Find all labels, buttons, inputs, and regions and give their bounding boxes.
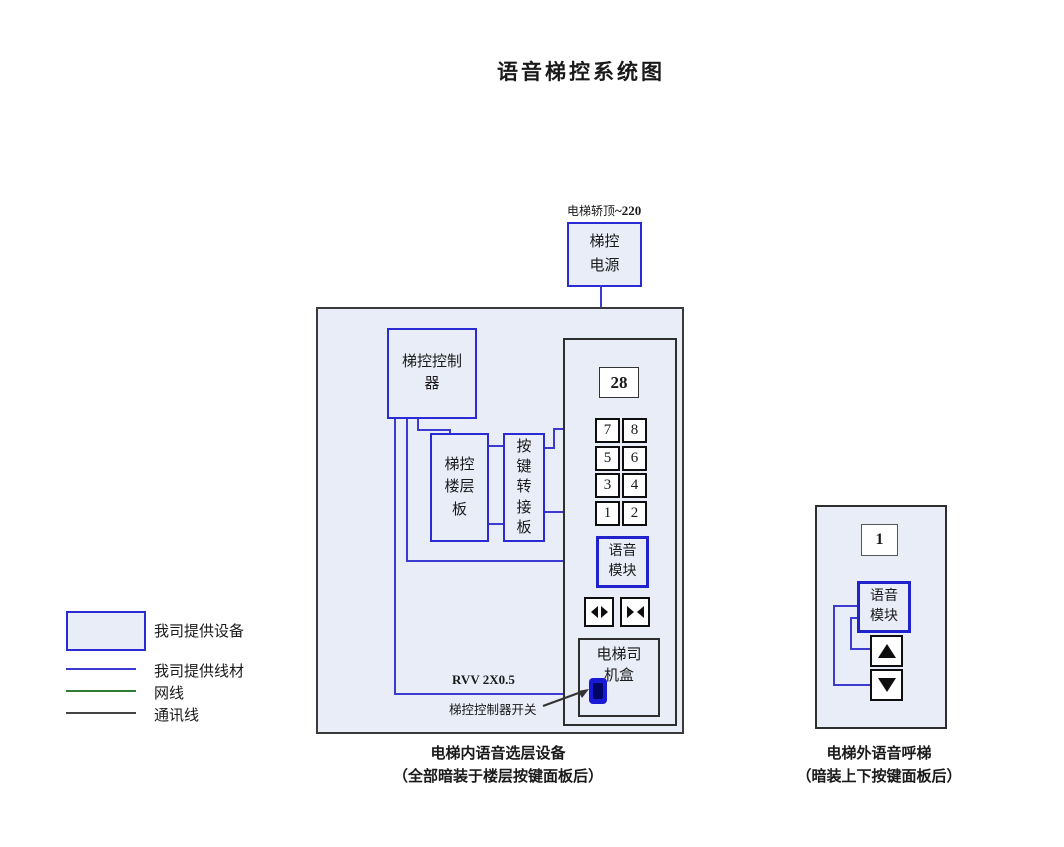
voice-module-hall: 语音 模块	[857, 581, 911, 633]
power-location-text: 电梯轿顶	[567, 204, 615, 218]
hall-down-button	[870, 669, 903, 701]
wire-controller-to-floorboard-h	[417, 429, 451, 431]
cable-spec-label: RVV 2X0.5	[452, 672, 515, 688]
voice-module-cabin: 语音 模块	[596, 536, 649, 588]
elevator-controller-box: 梯控控制 器	[387, 328, 477, 419]
door-open-button	[584, 597, 614, 627]
cabin-caption-line2: （全部暗装于楼层按键面板后）	[316, 766, 680, 789]
floor-display: 28	[599, 367, 639, 398]
legend-comm-swatch	[66, 712, 136, 714]
wire-floorboard-adapter-bottom	[487, 523, 503, 525]
hall-caption-line1: 电梯外语音呼梯	[786, 743, 972, 766]
wire-hallvoice-down-v	[833, 605, 835, 686]
controller-switch-toggle	[593, 683, 603, 699]
legend-network-swatch	[66, 690, 136, 692]
wire-controller-to-switch-v	[394, 415, 396, 695]
legend-comm-label: 通讯线	[154, 704, 199, 725]
floor-button-2: 2	[622, 501, 647, 526]
floor-button-5: 5	[595, 446, 620, 471]
key-adapter-box: 按 键 转 接 板	[503, 433, 545, 542]
floor-button-3: 3	[595, 473, 620, 498]
cabin-caption-line1: 电梯内语音选层设备	[316, 743, 680, 766]
hall-caption: 电梯外语音呼梯 （暗装上下按键面板后）	[786, 743, 972, 789]
cabin-caption: 电梯内语音选层设备 （全部暗装于楼层按键面板后）	[316, 743, 680, 789]
wire-hallvoice-out-down	[833, 605, 857, 607]
legend-device-swatch	[66, 611, 146, 651]
power-location-note: 电梯轿顶~220	[567, 202, 641, 219]
hall-display: 1	[861, 524, 898, 556]
door-close-button	[620, 597, 650, 627]
wire-to-down-button	[833, 684, 870, 686]
pointer-arrow	[540, 682, 592, 710]
power-supply-box: 梯控 电源	[567, 222, 642, 287]
floor-button-4: 4	[622, 473, 647, 498]
door-open-icon	[591, 605, 608, 619]
diagram-title: 语音梯控系统图	[316, 56, 846, 86]
floor-board-box: 梯控 楼层 板	[430, 433, 489, 542]
floor-button-6: 6	[622, 446, 647, 471]
hall-up-button	[870, 635, 903, 667]
door-close-icon	[627, 605, 644, 619]
hall-caption-line2: （暗装上下按键面板后）	[786, 766, 972, 789]
legend-network-label: 网线	[154, 682, 184, 703]
power-voltage: ~220	[615, 203, 641, 218]
floor-button-8: 8	[622, 418, 647, 443]
legend-wire-swatch	[66, 668, 136, 670]
wire-floorboard-adapter-top	[487, 445, 503, 447]
floor-button-7: 7	[595, 418, 620, 443]
wire-adapter-up	[553, 428, 555, 449]
diagram-canvas: 语音梯控系统图 电梯轿顶~220 梯控 电源 梯控控制 器 梯控 楼层 板 按 …	[0, 0, 1064, 847]
legend-wire-label: 我司提供线材	[154, 660, 244, 681]
wire-controller-to-voice-v	[406, 415, 408, 562]
up-arrow-icon	[877, 643, 897, 659]
wire-to-up-button	[850, 648, 870, 650]
floor-button-1: 1	[595, 501, 620, 526]
legend-device-label: 我司提供设备	[154, 620, 244, 641]
down-arrow-icon	[877, 677, 897, 693]
switch-label: 梯控控制器开关	[449, 699, 537, 718]
wire-hallvoice-up-v	[850, 617, 852, 650]
